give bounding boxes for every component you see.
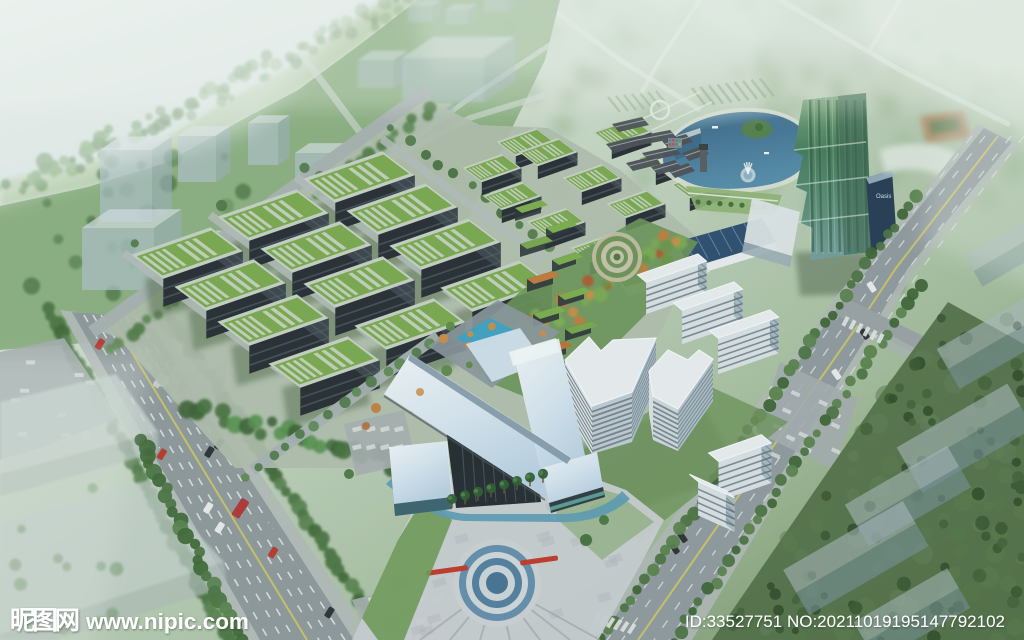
- svg-text:昵图网: 昵图网: [10, 607, 80, 635]
- svg-text:www.nipic.com: www.nipic.com: [85, 609, 249, 634]
- svg-text:ID:33527751 NO:202110191951477: ID:33527751 NO:20211019195147792102: [685, 612, 1005, 631]
